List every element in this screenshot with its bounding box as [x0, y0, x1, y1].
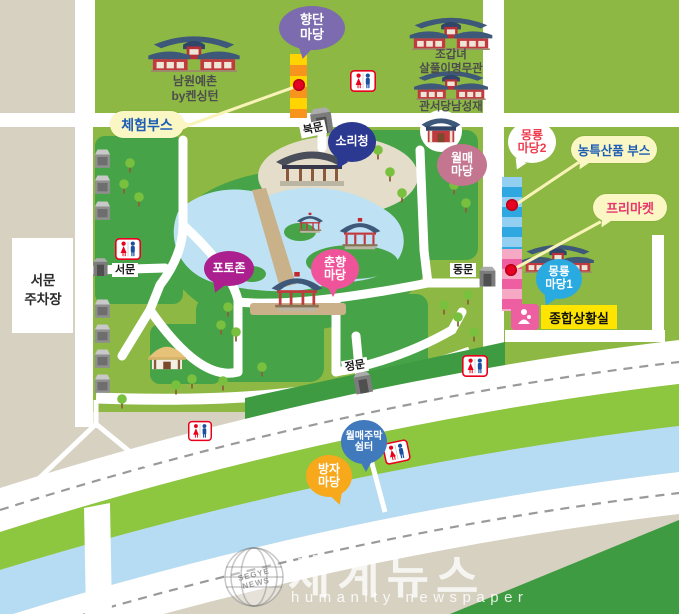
photozone-label: 포토존 [212, 262, 245, 275]
stall-icon [95, 300, 110, 318]
bubble-tail [296, 46, 312, 61]
restroom-icon [188, 418, 212, 449]
control-room-label: 종합상황실 [549, 308, 609, 327]
wolmae-jumak-label: 월매주막 쉼터 [346, 431, 383, 453]
free-market-strip [502, 249, 522, 311]
restroom-icon [350, 70, 376, 97]
chunhyang-madang-bubble: 춘향 마당 [311, 249, 359, 289]
free-market-marker-dot [505, 264, 517, 276]
river-bridge [84, 503, 112, 614]
west-gate-label: 서문 [112, 263, 138, 277]
free-market-pill: 프리마켓 [593, 194, 667, 221]
experience-booth-label: 체험부스 [121, 115, 173, 135]
experience-booth-marker-dot [293, 79, 305, 91]
watermark-tagline: humanity newspaper [291, 589, 528, 606]
pill-tail [182, 120, 192, 130]
farm-booth-pill: 농특산품 부스 [571, 136, 657, 163]
stall-icon [95, 350, 110, 368]
experience-booth-pill: 체험부스 [110, 111, 184, 138]
bangja-madang-bubble: 방자 마당 [306, 455, 352, 497]
east-gate-label: 동문 [450, 263, 476, 277]
wolmae-madang-bubble: 월매 마당 [437, 144, 487, 186]
parking-label: 서문 주차장 [10, 272, 76, 310]
sorichung-label: 소리청 [335, 135, 368, 148]
hyangdan-madang-bubble: 향단 마당 [279, 6, 345, 50]
nursing-room-icon [511, 304, 539, 330]
restroom-icon [462, 355, 488, 382]
stall-icon [95, 375, 110, 393]
gwanseodang-label: 관서당남성재 [395, 100, 507, 114]
farm-booth-strip [502, 177, 522, 249]
stall-icon [95, 325, 110, 343]
wolmae-jumak-bubble: 월매주막 쉼터 [341, 420, 387, 464]
west-gate-icon [93, 258, 107, 276]
bubble-tail [327, 286, 339, 297]
sorichung-bubble: 소리청 [328, 122, 376, 162]
hyangdan-madang-label: 향단 마당 [300, 13, 324, 42]
chunhyang-madang-label: 춘향 마당 [324, 256, 346, 283]
bangja-madang-label: 방자 마당 [318, 463, 340, 490]
stall-icon [95, 176, 110, 194]
bubble-tail [360, 461, 372, 472]
farm-booth-label: 농특산품 부스 [578, 140, 650, 159]
east-gate-icon [480, 267, 496, 287]
mongryong-madang2-bubble: 몽룡 마당2 [508, 121, 556, 163]
mongryong-madang2-label: 몽룡 마당2 [518, 129, 547, 156]
free-market-label: 프리마켓 [606, 198, 654, 217]
stall-icon [95, 202, 110, 220]
mongryong-madang1-bubble: 몽룡 마당1 [536, 259, 582, 299]
farm-booth-marker-dot [506, 199, 518, 211]
mongryong-madang1-label: 몽룡 마당1 [545, 266, 573, 292]
festival-map: 남원예촌 by켄싱턴 조갑녀 살풀이명무관 관서당남성재 서문 주차장 북문 서… [0, 0, 679, 614]
control-room-box: 종합상황실 [541, 305, 617, 329]
restroom-icon [115, 238, 141, 265]
stall-icon [95, 150, 110, 168]
photozone-bubble: 포토존 [204, 251, 254, 286]
jogabnyeo-label: 조갑녀 살풀이명무관 [395, 48, 507, 77]
wolmae-madang-label: 월매 마당 [451, 152, 473, 179]
yechon-label: 남원예촌 by켄싱턴 [140, 74, 250, 104]
